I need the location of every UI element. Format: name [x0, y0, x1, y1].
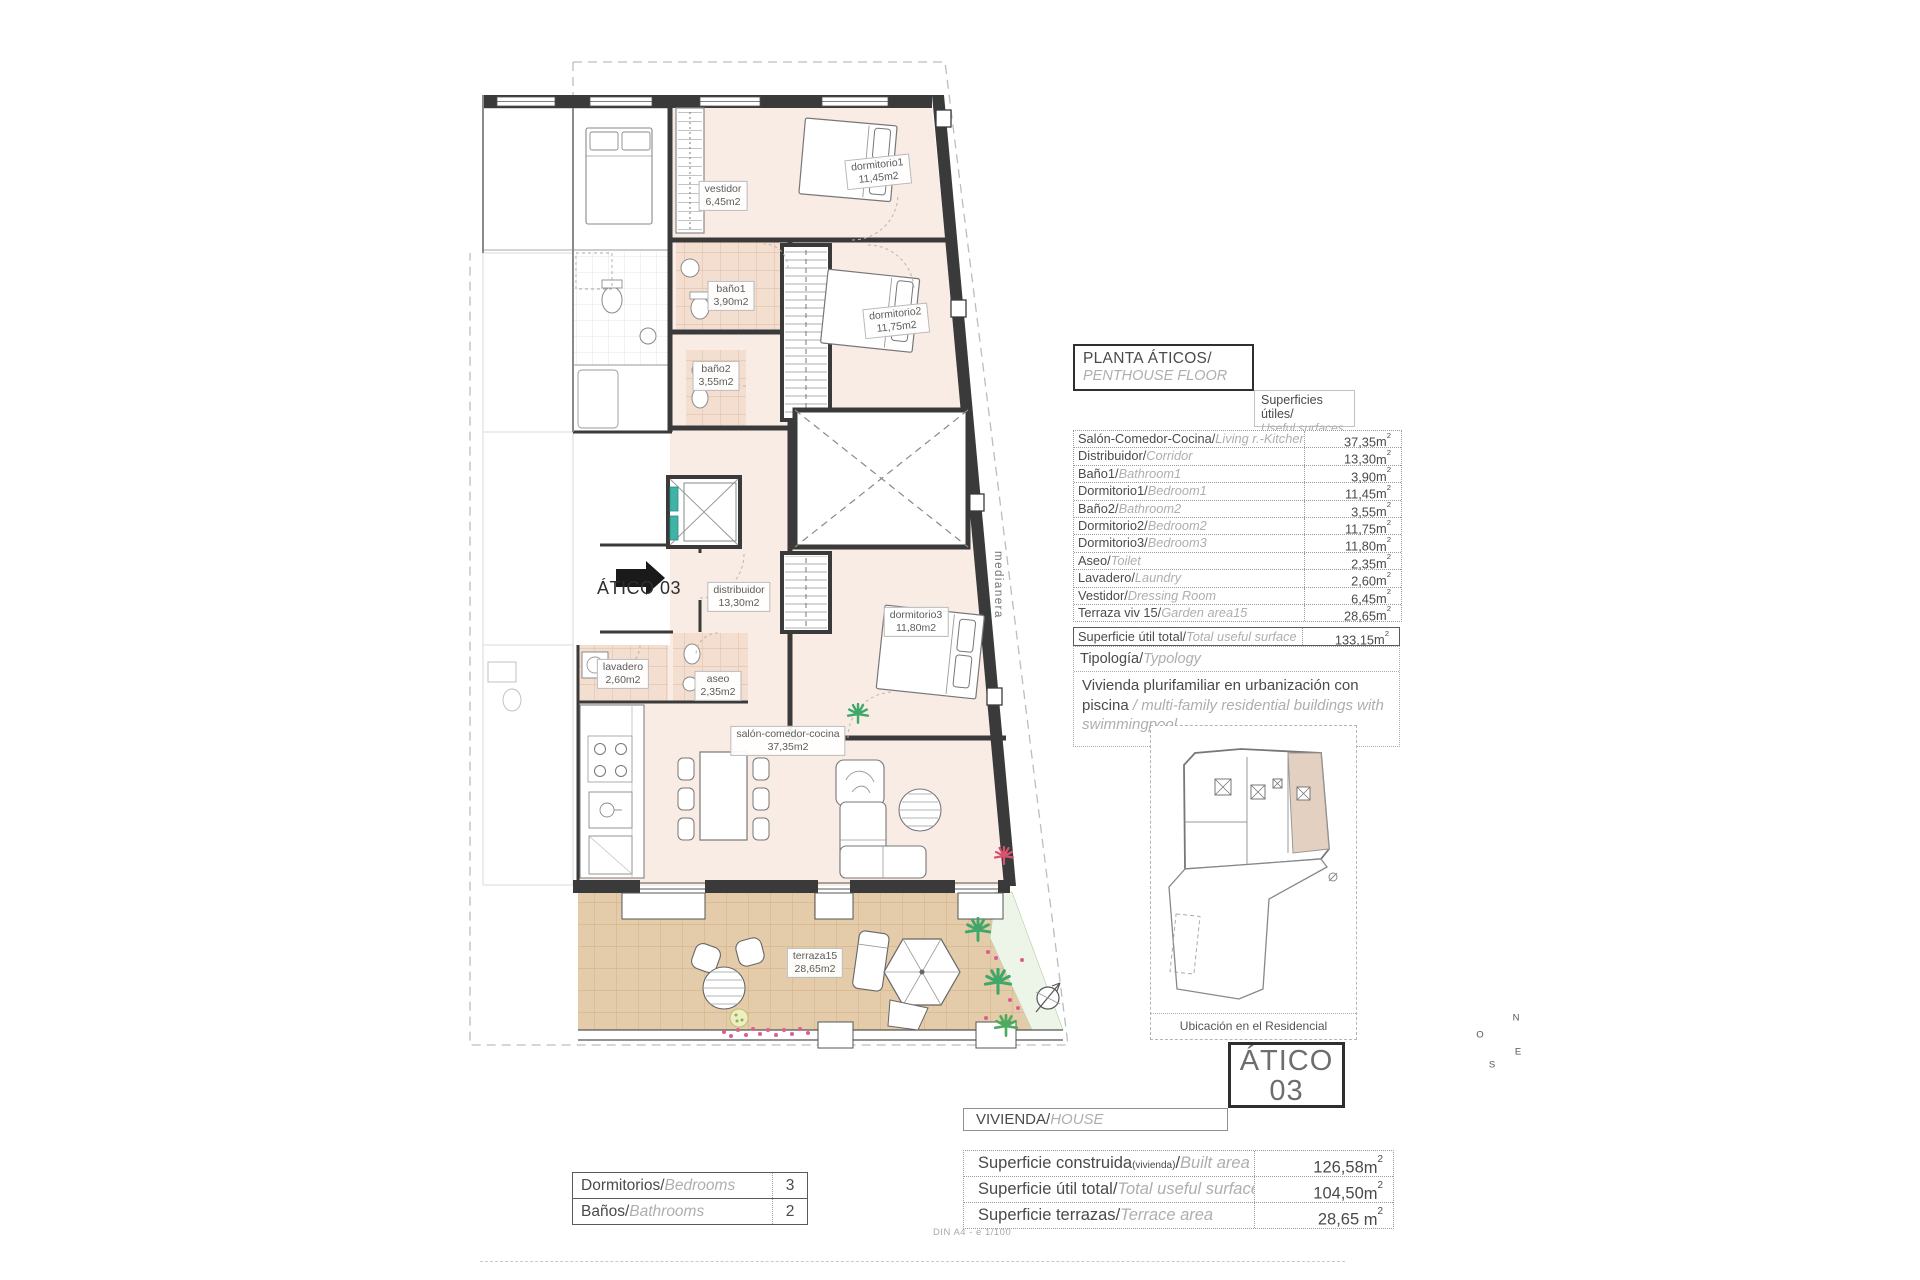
location-map-box: Ubicación en el Residencial — [1150, 725, 1357, 1040]
compass-n: N — [1513, 1013, 1520, 1024]
room-area: 3,90m2 — [713, 296, 748, 309]
surfaces-table: Salón-Comedor-Cocina/Living r.-Kitchen37… — [1073, 430, 1402, 622]
room-name: salón-comedor-cocina — [736, 728, 839, 740]
room-label: salón-comedor-cocina37,35m2 — [730, 726, 845, 756]
surface-row: Aseo/Toilet2,35m2 — [1074, 553, 1401, 570]
rooms-count-row: Dormitorios/Bedrooms 3 — [573, 1173, 807, 1199]
title-block: PLANTA ÁTICOS/ PENTHOUSE FLOOR — [1073, 344, 1254, 391]
compass-o: O — [1476, 1030, 1483, 1041]
room-name: vestidor — [705, 183, 742, 195]
room-area: 6,45m2 — [705, 196, 742, 209]
unit-id-line2: 03 — [1231, 1076, 1342, 1106]
location-map-caption: Ubicación en el Residencial — [1151, 1013, 1356, 1039]
room-area: 11,80m2 — [890, 622, 943, 635]
surface-row: Terraza viv 15/Garden area1528,65m2 — [1074, 605, 1401, 621]
floor-plan-drawing — [455, 48, 1080, 1058]
sheet-scale-note: DIN A4 - e 1/100 — [933, 1227, 1011, 1238]
room-name: dormitorio3 — [890, 609, 943, 621]
unit-pointer-label: ÁTICO 03 — [597, 578, 681, 599]
house-table: Superficie construida(vivienda)/Built ar… — [963, 1150, 1394, 1229]
room-name: distribuidor — [713, 584, 764, 596]
room-label: vestidor6,45m2 — [699, 181, 748, 211]
compass-s: S — [1489, 1060, 1495, 1071]
house-row: Superficie construida(vivienda)/Built ar… — [964, 1151, 1393, 1177]
room-name: lavadero — [603, 661, 643, 673]
surface-row: Dormitorio1/Bedroom111,45m2 — [1074, 483, 1401, 500]
house-row: Superficie terrazas/Terrace area 28,65 m… — [964, 1203, 1393, 1228]
party-wall-label: medianera — [992, 551, 1004, 619]
title-en: PENTHOUSE FLOOR — [1083, 368, 1244, 384]
location-map-drawing — [1151, 727, 1356, 1014]
room-name: baño1 — [716, 283, 745, 295]
room-label: lavadero2,60m2 — [597, 659, 649, 689]
unit-id-line1: ÁTICO — [1231, 1046, 1342, 1076]
vivienda-bar: VIVIENDA/HOUSE — [963, 1108, 1228, 1131]
sheet-trim-line — [480, 1261, 1345, 1262]
surface-row: Distribuidor/Corridor13,30m2 — [1074, 448, 1401, 465]
surface-row: Lavadero/Laundry2,60m2 — [1074, 570, 1401, 587]
typology-header-es: Tipología/ — [1080, 651, 1143, 667]
compass-e: E — [1515, 1047, 1521, 1058]
surfaces-total-row: Superficie útil total/Total useful surfa… — [1073, 627, 1400, 646]
rooms-count-table: Dormitorios/Bedrooms 3 Baños/Bathrooms 2 — [572, 1172, 808, 1225]
surface-row: Dormitorio2/Bedroom211,75m2 — [1074, 518, 1401, 535]
surface-row: Baño2/Bathroom23,55m2 — [1074, 501, 1401, 518]
room-label: baño13,90m2 — [707, 281, 754, 311]
room-area: 3,55m2 — [698, 376, 733, 389]
vivienda-en: HOUSE — [1050, 1111, 1103, 1128]
unit-id-box: ÁTICO 03 — [1228, 1042, 1345, 1108]
rooms-count-row: Baños/Bathrooms 2 — [573, 1199, 807, 1224]
room-area: 2,35m2 — [700, 686, 735, 699]
house-row: Superficie útil total/Total useful surfa… — [964, 1177, 1393, 1203]
room-name: baño2 — [701, 363, 730, 375]
surfaces-header-es: Superficies útiles/ — [1261, 393, 1348, 421]
room-area: 28,65m2 — [793, 963, 837, 976]
typology-header-en: Typology — [1143, 651, 1201, 667]
vivienda-es: VIVIENDA/ — [976, 1111, 1050, 1128]
title-es: PLANTA ÁTICOS/ — [1083, 350, 1244, 368]
room-label: baño23,55m2 — [692, 361, 739, 391]
room-label: dormitorio311,80m2 — [884, 607, 949, 637]
surface-row: Vestidor/Dressing Room6,45m2 — [1074, 588, 1401, 605]
room-label: aseo2,35m2 — [694, 671, 741, 701]
room-name: terraza15 — [793, 950, 837, 962]
surface-row: Salón-Comedor-Cocina/Living r.-Kitchen37… — [1074, 431, 1401, 448]
room-area: 2,60m2 — [603, 674, 643, 687]
surfaces-header: Superficies útiles/ Useful surfaces — [1254, 390, 1355, 427]
room-label: distribuidor13,30m2 — [707, 582, 770, 612]
room-name: aseo — [707, 673, 730, 685]
surface-row: Dormitorio3/Bedroom311,80m2 — [1074, 535, 1401, 552]
surface-row: Baño1/Bathroom13,90m2 — [1074, 466, 1401, 483]
room-area: 13,30m2 — [713, 597, 764, 610]
room-label: terraza1528,65m2 — [787, 948, 843, 978]
room-area: 37,35m2 — [736, 741, 839, 754]
